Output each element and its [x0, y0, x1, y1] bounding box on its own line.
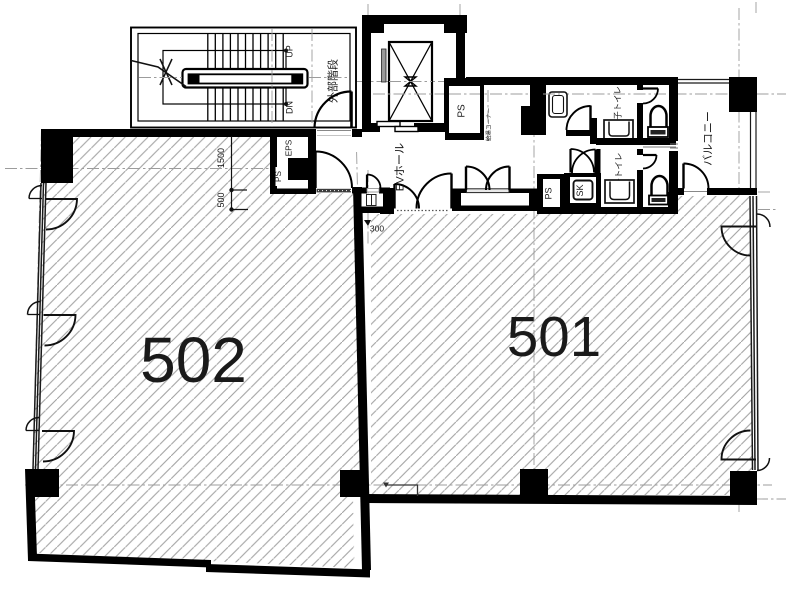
svg-text:SK: SK: [575, 184, 585, 196]
svg-text:PS: PS: [274, 171, 283, 182]
svg-text:500: 500: [216, 192, 226, 207]
svg-text:バルコニー: バルコニー: [702, 111, 715, 166]
svg-text:DN: DN: [285, 101, 295, 114]
svg-text:300: 300: [370, 224, 384, 234]
svg-text:502: 502: [140, 324, 247, 396]
svg-text:501: 501: [507, 305, 601, 368]
svg-text:EPS: EPS: [285, 139, 294, 156]
svg-text:PS: PS: [457, 104, 468, 118]
svg-text:給湯コーナー: 給湯コーナー: [485, 107, 493, 141]
svg-text:EVホール: EVホール: [394, 143, 407, 192]
svg-text:1500: 1500: [216, 148, 226, 168]
svg-text:UP: UP: [285, 45, 295, 58]
svg-text:PS: PS: [544, 187, 554, 199]
